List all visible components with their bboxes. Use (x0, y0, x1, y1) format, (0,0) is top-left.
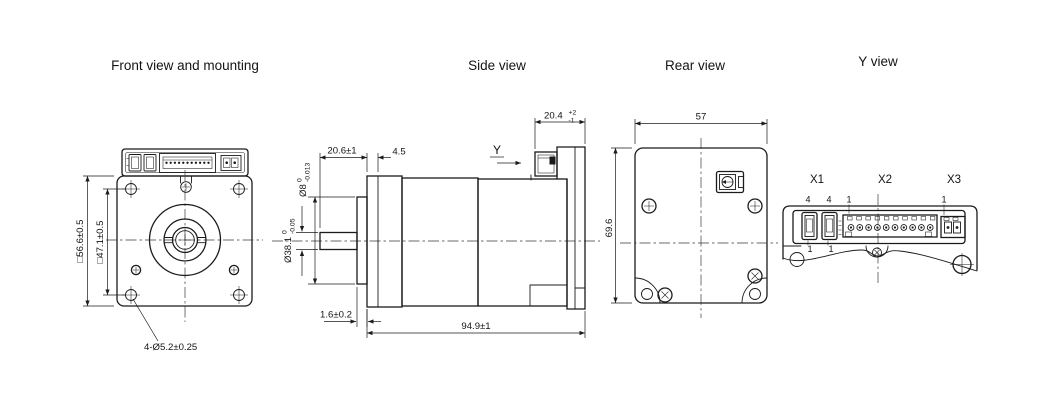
dim-shaft-diameter-value: Ø8 (298, 184, 309, 197)
dim-pilot-diameter-upper: 0 (282, 230, 289, 234)
side-flange (367, 176, 402, 307)
dim-connector-width-upper: +2 (569, 110, 577, 117)
dim-pilot-height-label: 1.6±0.2 (320, 310, 352, 321)
side-bottom-notch (530, 285, 567, 306)
x1-pin1-b-label: 1 (828, 244, 833, 254)
x1-pin4-b-label: 4 (826, 195, 831, 205)
dim-connector-width-value: 20.4 (544, 111, 563, 122)
dim-shaft-diameter-lower: -0.013 (305, 163, 312, 182)
rear-screw-bottom-left-icon (658, 288, 672, 302)
y-view-hole-right (950, 253, 974, 276)
side-motor-body (478, 179, 567, 306)
mounting-hole-bottom-right (230, 286, 248, 304)
rear-hole-bottom-left (642, 289, 653, 300)
x3-connector-icon (941, 217, 965, 238)
rear-view: 57 69.6 (604, 112, 778, 319)
dim-rear-height: 69.6 (604, 148, 632, 303)
dim-rear-width-label: 57 (696, 112, 707, 123)
front-view: □56.6±0.5 □47.1±0.5 4-Ø5.2±0.25 (75, 149, 263, 353)
technical-drawing-page: Front view and mounting Side view Rear v… (0, 0, 1050, 411)
y-view-hole-left (790, 253, 804, 267)
dim-shaft-length-label: 20.6±1 (327, 146, 356, 157)
x1-label: X1 (810, 174, 824, 186)
side-gearbox-ribs (402, 178, 478, 306)
y-view-title: Y view (858, 54, 898, 69)
side-pilot-boss (357, 197, 367, 284)
front-usb-connector-a-icon (127, 155, 142, 172)
front-multipin-connector-icon (160, 154, 216, 173)
side-view: Y 20.6±1 4.5 20.4 +2 -1 (272, 110, 600, 339)
y-direction-label: Y (493, 143, 501, 157)
y-view-center-tab (866, 246, 888, 257)
x1-connector-b-icon (822, 213, 842, 240)
front-view-title: Front view and mounting (111, 58, 259, 73)
x2-pin1-label: 1 (846, 195, 851, 205)
front-two-pin-connector-icon (221, 156, 241, 171)
dim-pilot-diameter-value: Ø38.1 (283, 237, 294, 263)
front-flange-face (117, 176, 252, 306)
dim-total-length: 94.9±1 (367, 309, 585, 338)
rear-hole-bottom-right (750, 289, 761, 300)
dim-connector-width-lower: -1 (569, 118, 575, 125)
mounting-holes-label: 4-Ø5.2±0.25 (144, 342, 197, 353)
x3-pin1-label: 1 (941, 195, 946, 205)
rear-view-title: Rear view (665, 58, 725, 73)
x3-label: X3 (947, 174, 961, 186)
x1-pin4-a-label: 4 (805, 195, 810, 205)
dim-pilot-diameter-lower: -0.05 (290, 218, 297, 234)
dim-front-mounting-holes: 4-Ø5.2±0.25 (133, 299, 197, 353)
x1-connector-a-icon (802, 213, 817, 240)
side-top-connector-icon (535, 152, 557, 176)
dim-bolt-square-label: □47.1±0.5 (95, 220, 106, 263)
side-view-title: Side view (468, 58, 526, 73)
front-usb-connector-b-icon (144, 155, 156, 172)
dim-connector-width: 20.4 +2 -1 (535, 110, 585, 150)
front-top-screw-icon (181, 176, 192, 192)
front-mid-screw-left-icon (131, 265, 140, 274)
dim-outer-square-label: □56.6±0.5 (75, 219, 86, 262)
x2-connector-icon (843, 215, 937, 237)
rotary-switch-icon (717, 172, 744, 193)
rear-screw-top-right-icon (748, 199, 762, 213)
dim-flange-thickness: 4.5 (378, 147, 406, 173)
dim-front-bolt-square: □47.1±0.5 (95, 189, 126, 295)
dim-shaft-length: 20.6±1 (320, 146, 367, 229)
rear-screw-top-left-icon (642, 199, 656, 213)
dim-flange-thickness-label: 4.5 (392, 147, 405, 158)
mounting-hole-top-right (230, 180, 248, 198)
motor-drawing-canvas: Front view and mounting Side view Rear v… (0, 0, 1050, 411)
dim-pilot-diameter: Ø38.1 0 -0.05 (282, 197, 356, 284)
dim-rear-height-label: 69.6 (604, 219, 615, 238)
dim-total-length-label: 94.9±1 (461, 321, 490, 332)
y-view: X1 X2 X3 4 4 1 1 1 1 (783, 174, 977, 284)
x2-label: X2 (878, 174, 892, 186)
side-rear-housing-inner (575, 147, 585, 309)
dim-shaft-diameter-upper: 0 (297, 178, 304, 182)
front-mid-screw-right-icon (229, 265, 238, 274)
y-direction-marker: Y (490, 143, 521, 163)
